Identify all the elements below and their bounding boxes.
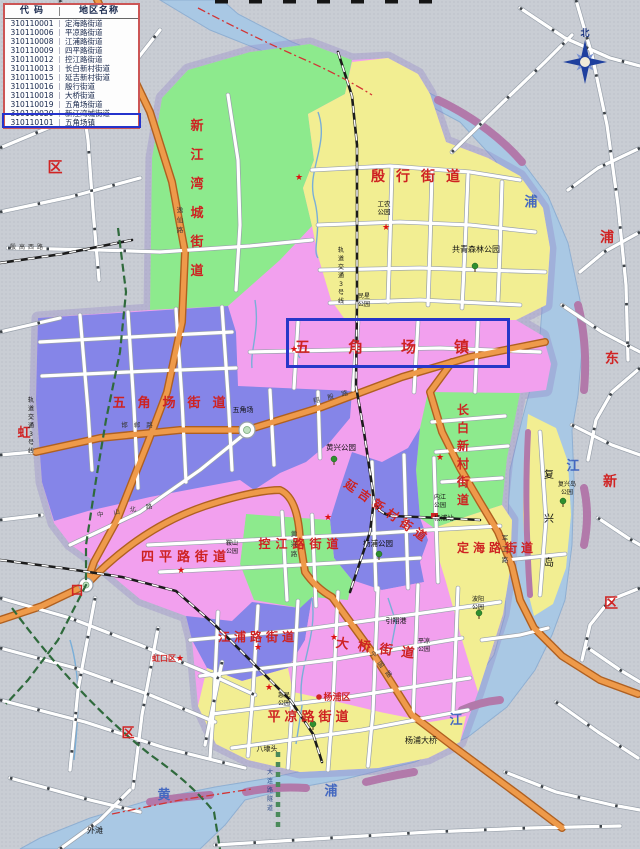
tree-icon	[472, 263, 478, 269]
legend-row: 310110013长白新村街道	[5, 64, 138, 73]
legend-row-name: 江浦路街道	[60, 38, 138, 46]
legend-row-name: 控江路街道	[60, 56, 138, 64]
tree-icon	[331, 456, 337, 462]
map-label: ★	[324, 513, 332, 523]
map-label: 公园	[434, 502, 446, 509]
map-label: ★	[436, 453, 444, 463]
map-label: 轨道交通3号线	[28, 396, 34, 455]
legend-row: 310110018大桥街道	[5, 91, 138, 100]
map-label: 口	[70, 584, 83, 599]
map-label: 内江	[434, 493, 446, 501]
map-label: 公园	[278, 700, 290, 707]
legend-rows: 310110001定海路街道310110006平凉路街道310110008江浦路…	[5, 19, 138, 127]
map-label: 浦	[324, 783, 337, 799]
map-label: 公园	[561, 489, 573, 496]
legend-row-code: 310110016	[5, 83, 60, 91]
map-label: 复兴岛	[558, 480, 576, 488]
legend-row-code: 310110006	[5, 29, 60, 37]
tree-icon	[376, 551, 382, 557]
map-label: ★	[254, 643, 262, 653]
map-label: 逸仙路	[177, 205, 184, 234]
map-label: ★	[176, 654, 184, 664]
map-label: 黄兴公园	[326, 442, 356, 452]
map-label: 浦	[600, 229, 614, 246]
legend-row: 310110009四平路街道	[5, 46, 138, 55]
map-label: 定海路街道	[457, 540, 537, 555]
map-label: ★	[382, 223, 390, 233]
map-label: 军工路	[502, 534, 509, 564]
map-label: 平凉路街道	[267, 709, 352, 725]
map-label: 区	[47, 158, 62, 176]
legend-row-name: 四平路街道	[60, 47, 138, 55]
legend-row-name: 平凉路街道	[60, 29, 138, 37]
map-label: 江浦路街道	[218, 629, 298, 644]
map-label: 江	[566, 458, 579, 474]
map-label: ★	[265, 683, 273, 693]
legend-row-code: 310110009	[5, 47, 60, 55]
map-label: ★	[295, 173, 303, 183]
legend-row: 310110012控江路街道	[5, 55, 138, 64]
map-label: 公园	[472, 604, 484, 611]
map-label: 控江路街道	[258, 536, 343, 551]
map-label: 轨道交通3号线	[338, 246, 344, 305]
map-label: 共青森林公园	[452, 244, 500, 254]
map-label: 引翔港	[386, 616, 407, 625]
legend-row-name: 长白新村街道	[60, 65, 138, 73]
legend-row-code: 310110012	[5, 56, 60, 64]
map-label: 区	[604, 596, 618, 612]
legend-row-code: 310110008	[5, 38, 60, 46]
map-label: 公园	[358, 301, 370, 308]
map-label: 大连路隧道	[267, 768, 273, 812]
map-label: 东	[605, 350, 619, 367]
map-label: 五角场街道	[112, 395, 237, 411]
legend-row: 310110001定海路街道	[5, 19, 138, 28]
map-label: 平凉	[418, 637, 430, 645]
map-label: 新	[603, 473, 617, 490]
legend-row: 310110008江浦路街道	[5, 37, 138, 46]
legend-table: 代 码 地区名称 310110001定海路街道310110006平凉路街道310…	[3, 3, 140, 129]
map-label: 邯郸路	[121, 420, 159, 429]
compass-rose	[563, 40, 607, 84]
district-map: ★★★★★★★★★★ 新江湾城街道殷行街道五角场镇五角场街道长白新村街道延吉新村…	[0, 0, 640, 849]
legend-row-code: 310110018	[5, 92, 60, 100]
map-label: 虹口区	[152, 653, 176, 663]
map-label: 杨浦区	[323, 691, 350, 703]
map-label: 公园	[226, 548, 238, 555]
map-label: 波阳	[472, 595, 484, 603]
legend-row: 310110006平凉路街道	[5, 28, 138, 37]
legend-row-name: 定海路街道	[60, 20, 138, 28]
map-label: 五角场	[233, 405, 254, 414]
legend-header-code: 代 码	[5, 7, 60, 16]
map-label: 四平路街道	[141, 549, 231, 565]
legend-header: 代 码 地区名称	[5, 5, 138, 19]
yangpu-district-seat-dot	[316, 694, 322, 700]
legend-row-name: 延吉新村街道	[60, 74, 138, 82]
map-label: 黄兴路	[291, 529, 298, 558]
legend-row-name: 殷行街道	[60, 83, 138, 91]
legend-row-code: 310110001	[5, 20, 60, 28]
legend-row: 310110019五角场街道	[5, 100, 138, 109]
map-label: 公园	[378, 208, 391, 216]
map-label: 民星	[358, 293, 370, 300]
legend-row-code: 310110013	[5, 65, 60, 73]
legend-row: 310110016殷行街道	[5, 82, 138, 91]
legend-row-name: 五角场街道	[60, 101, 138, 109]
wujiaochang-town-highlight-box	[286, 318, 510, 368]
legend-row-code: 310110015	[5, 74, 60, 82]
legend-highlight-box	[2, 113, 141, 128]
map-label: 江	[449, 712, 462, 728]
map-label: 浦	[524, 194, 537, 210]
map-label: ★	[177, 566, 185, 576]
map-label: 工农	[378, 199, 392, 208]
legend-header-name: 地区名称	[60, 7, 138, 16]
map-label: 外滩	[87, 825, 103, 835]
map-label: 公园	[418, 646, 430, 653]
legend-row: 310110015延吉新村街道	[5, 73, 138, 82]
tree-icon	[560, 498, 566, 504]
map-label: 区	[121, 726, 134, 741]
map-label: 杨浦公园	[363, 538, 393, 548]
legend-row-code: 310110019	[5, 101, 60, 109]
map-label: 北	[580, 27, 589, 39]
map-label: 八埭头	[257, 744, 278, 753]
map-label: 杨浦大桥	[405, 735, 437, 745]
map-label: 殷行街道	[371, 168, 471, 185]
cropped-title-fragment	[215, 0, 432, 4]
legend-row-name: 大桥街道	[60, 92, 138, 100]
map-label: 殷高西路	[10, 243, 46, 251]
map-label: 黄	[157, 787, 170, 803]
map-label: 鞍山	[226, 539, 238, 547]
